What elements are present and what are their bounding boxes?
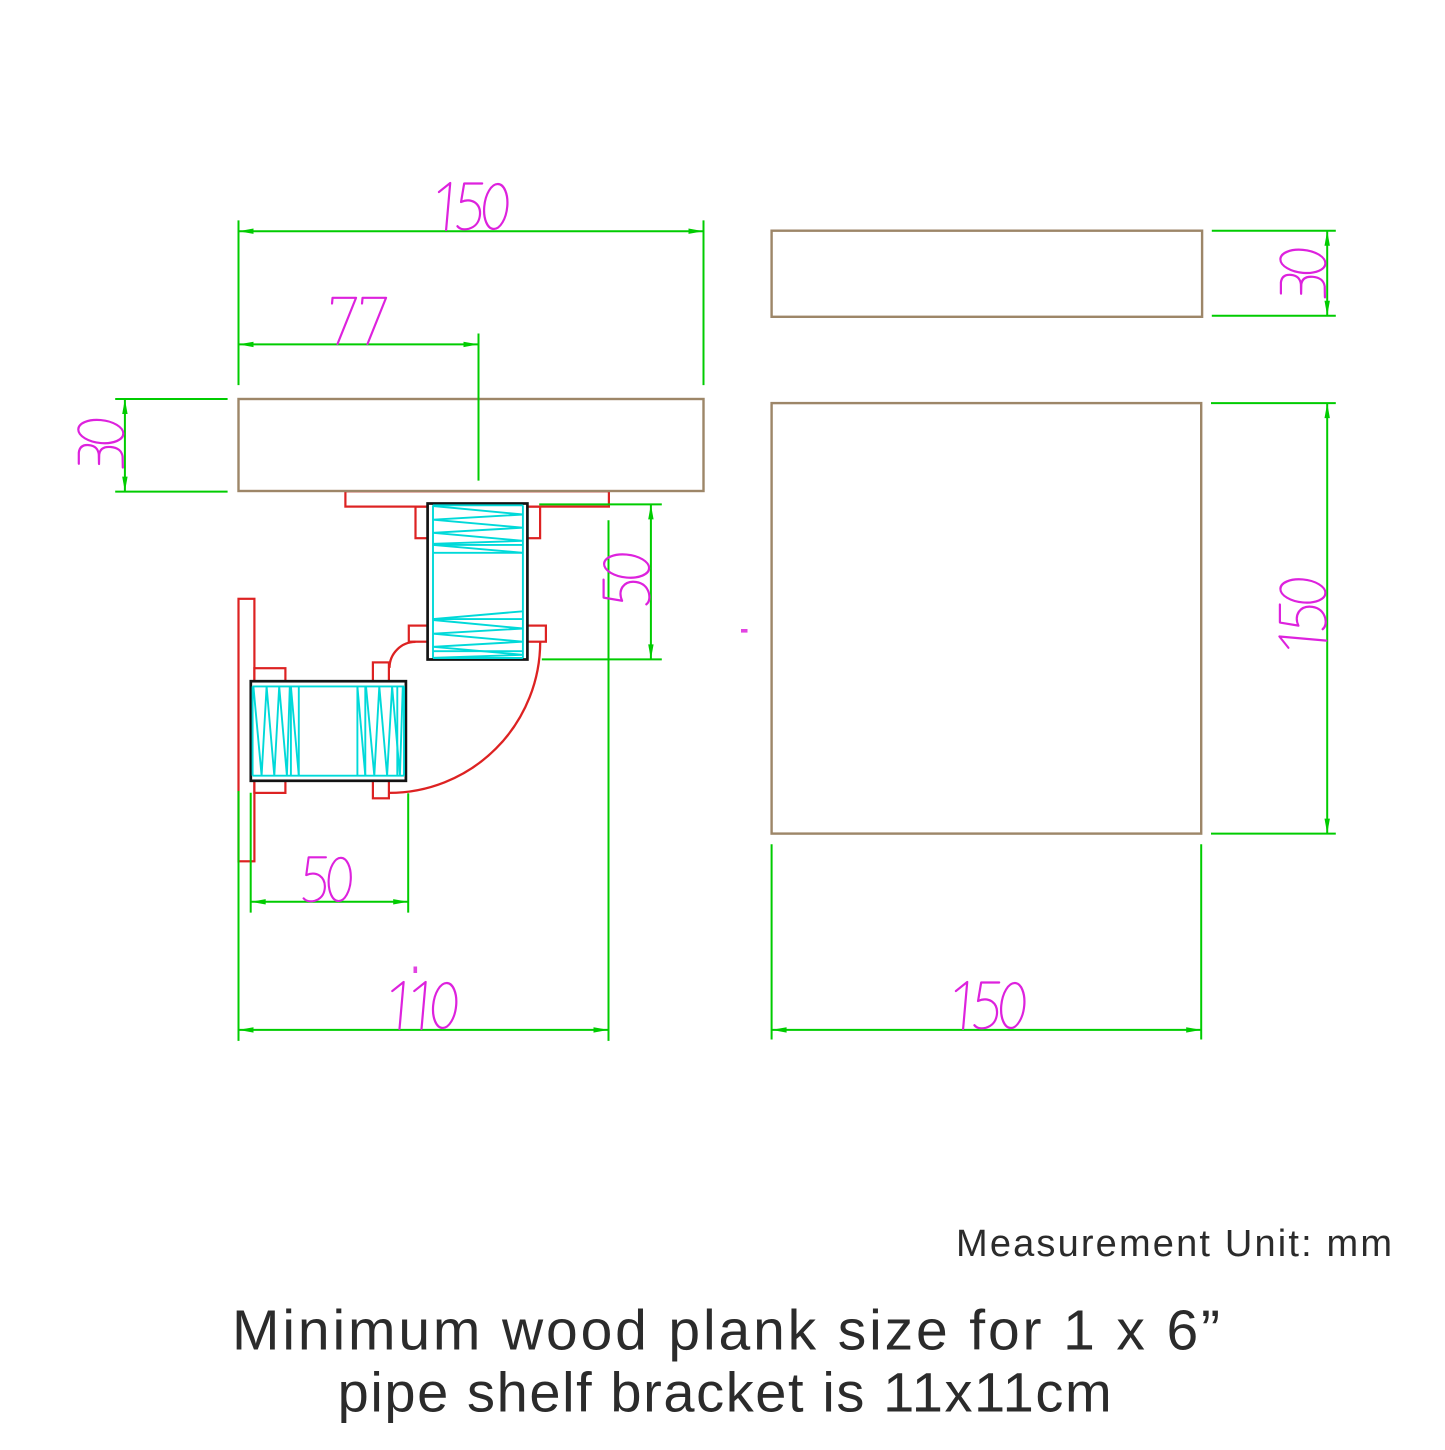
svg-text:Minimum wood plank size for 1: Minimum wood plank size for 1 x 6” bbox=[232, 1299, 1220, 1363]
